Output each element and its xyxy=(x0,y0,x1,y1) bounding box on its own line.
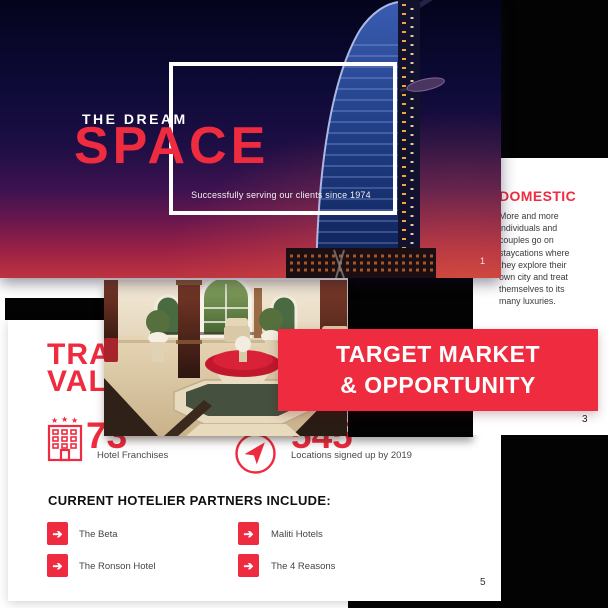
slide-1-card[interactable]: THE DREAM SPACE Successfully serving our… xyxy=(0,0,501,278)
slide5-title-line2: VAL xyxy=(47,367,108,397)
domestic-body-text: More and moreindividuals and couples go … xyxy=(499,210,599,308)
partner-item: The Beta xyxy=(79,529,118,540)
compass-arrow-icon xyxy=(233,431,278,481)
slide-3-black-background xyxy=(348,601,608,608)
svg-text:★: ★ xyxy=(51,416,58,425)
arrow-right-icon: ➔ xyxy=(238,554,259,577)
arrow-right-icon: ➔ xyxy=(47,522,68,545)
band-title-line1: TARGET MARKET xyxy=(336,339,540,370)
partner-item: The Ronson Hotel xyxy=(79,561,156,572)
svg-text:★: ★ xyxy=(61,415,68,424)
target-market-band: TARGET MARKET & OPPORTUNITY xyxy=(278,329,598,411)
page-number-1: 1 xyxy=(480,256,485,266)
svg-text:★: ★ xyxy=(71,416,78,425)
arrow-right-icon: ➔ xyxy=(238,522,259,545)
partner-item: The 4 Reasons xyxy=(271,561,335,572)
slide1-title: SPACE xyxy=(74,120,269,172)
hidden-slide-edge xyxy=(5,298,104,320)
band-title-line2: & OPPORTUNITY xyxy=(340,370,536,401)
domestic-heading: DOMESTIC xyxy=(499,188,576,204)
stat-franchises-label: Hotel Franchises xyxy=(97,450,168,461)
stat-locations-label: Locations signed up by 2019 xyxy=(291,450,412,461)
partners-heading: CURRENT HOTELIER PARTNERS INCLUDE: xyxy=(48,493,331,508)
page-number-3: 3 xyxy=(582,414,588,425)
page-number-5: 5 xyxy=(480,577,486,588)
slide-deck-preview: TRA VAL ★★★ 73 Hotel Franchises xyxy=(0,0,608,608)
partner-item: Maliti Hotels xyxy=(271,529,323,540)
arrow-right-icon: ➔ xyxy=(47,554,68,577)
slide1-subtitle: Successfully serving our clients since 1… xyxy=(171,190,391,200)
hotel-building-icon: ★★★ xyxy=(45,414,85,467)
